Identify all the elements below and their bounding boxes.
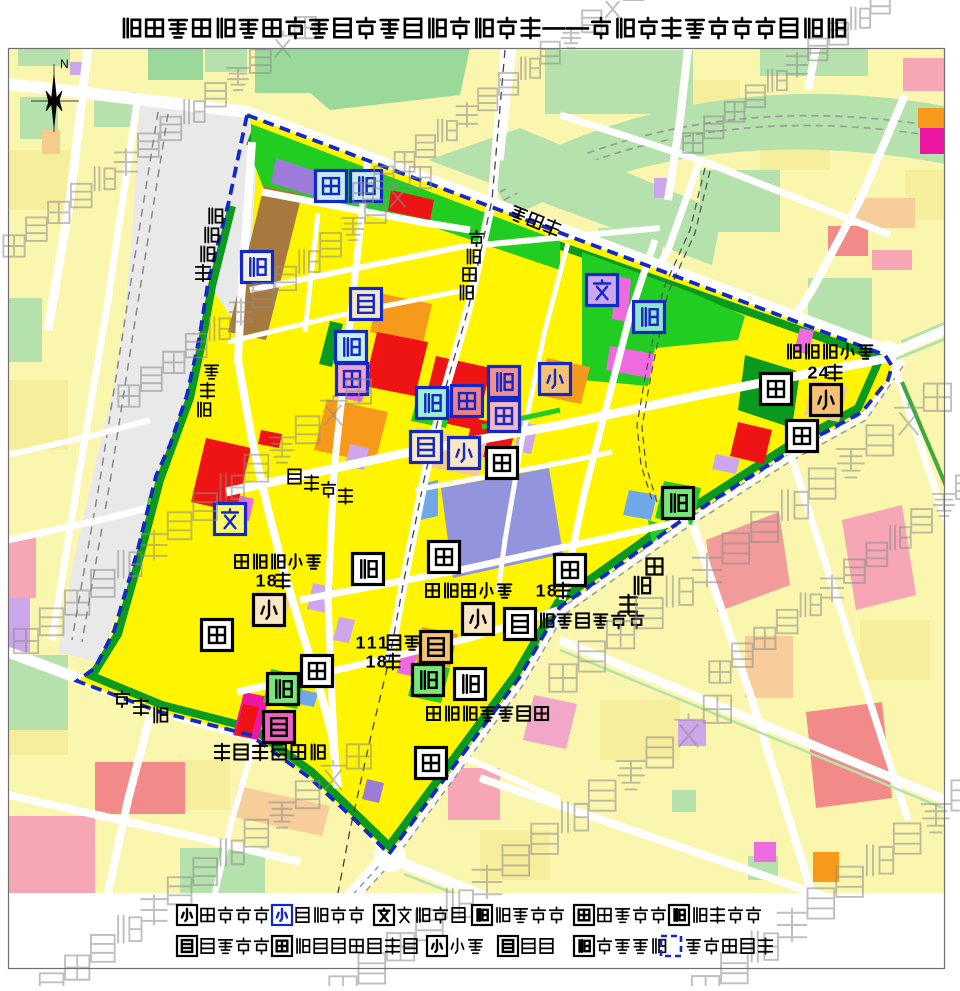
svg-text:2: 2: [808, 363, 818, 383]
svg-text:1: 1: [366, 652, 376, 672]
svg-text:1: 1: [256, 571, 266, 591]
svg-text:1: 1: [378, 633, 388, 653]
svg-text:1: 1: [536, 581, 546, 601]
svg-text:1: 1: [367, 633, 377, 653]
svg-text:1: 1: [356, 633, 366, 653]
svg-text:N: N: [60, 57, 69, 71]
